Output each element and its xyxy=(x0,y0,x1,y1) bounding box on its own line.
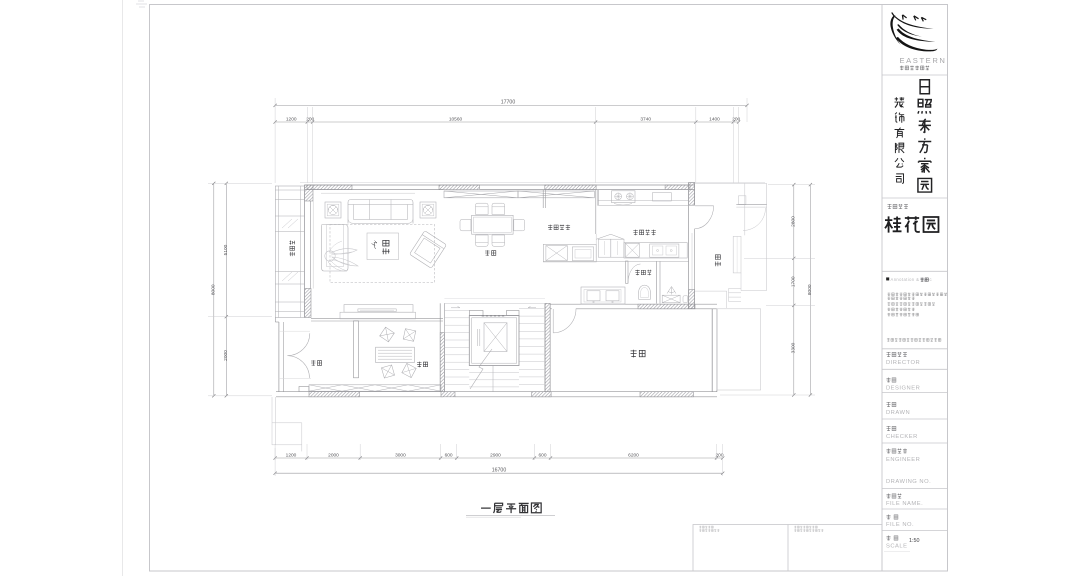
svg-text:600: 600 xyxy=(538,452,546,458)
svg-text:DIRECTOR: DIRECTOR xyxy=(886,360,920,366)
svg-text:1:50: 1:50 xyxy=(909,538,920,544)
svg-text:600: 600 xyxy=(445,452,453,458)
svg-text:1200: 1200 xyxy=(286,452,297,458)
svg-text:ENGINEER: ENGINEER xyxy=(886,457,920,463)
svg-text:SCALE: SCALE xyxy=(886,544,908,550)
svg-text:2000: 2000 xyxy=(328,452,339,458)
svg-text:8000: 8000 xyxy=(210,284,216,295)
svg-text:16700: 16700 xyxy=(492,467,507,473)
svg-text:6200: 6200 xyxy=(628,452,639,458)
svg-text:2800: 2800 xyxy=(790,216,796,227)
svg-text:FILE NO.: FILE NO. xyxy=(886,522,914,528)
svg-text:2900: 2900 xyxy=(490,452,501,458)
svg-text:3740: 3740 xyxy=(640,117,651,123)
svg-text:1200: 1200 xyxy=(286,117,297,123)
svg-text:17700: 17700 xyxy=(501,100,516,106)
svg-text:3000: 3000 xyxy=(395,452,406,458)
svg-text:DESIGNER: DESIGNER xyxy=(886,385,920,391)
svg-text:2000: 2000 xyxy=(223,350,229,361)
svg-text:1700: 1700 xyxy=(790,276,796,287)
svg-text:DRAWING NO.: DRAWING NO. xyxy=(886,479,931,485)
svg-text:FILE NAME.: FILE NAME. xyxy=(886,501,923,507)
svg-text:CHECKER: CHECKER xyxy=(886,434,918,440)
svg-text:8000: 8000 xyxy=(807,284,813,295)
svg-text:5100: 5100 xyxy=(223,244,229,255)
svg-text:1400: 1400 xyxy=(709,117,720,123)
svg-text:3300: 3300 xyxy=(790,342,796,353)
svg-text:10560: 10560 xyxy=(449,117,463,123)
svg-text:EASTERN: EASTERN xyxy=(899,56,946,65)
svg-text:DRAWN: DRAWN xyxy=(886,410,910,416)
